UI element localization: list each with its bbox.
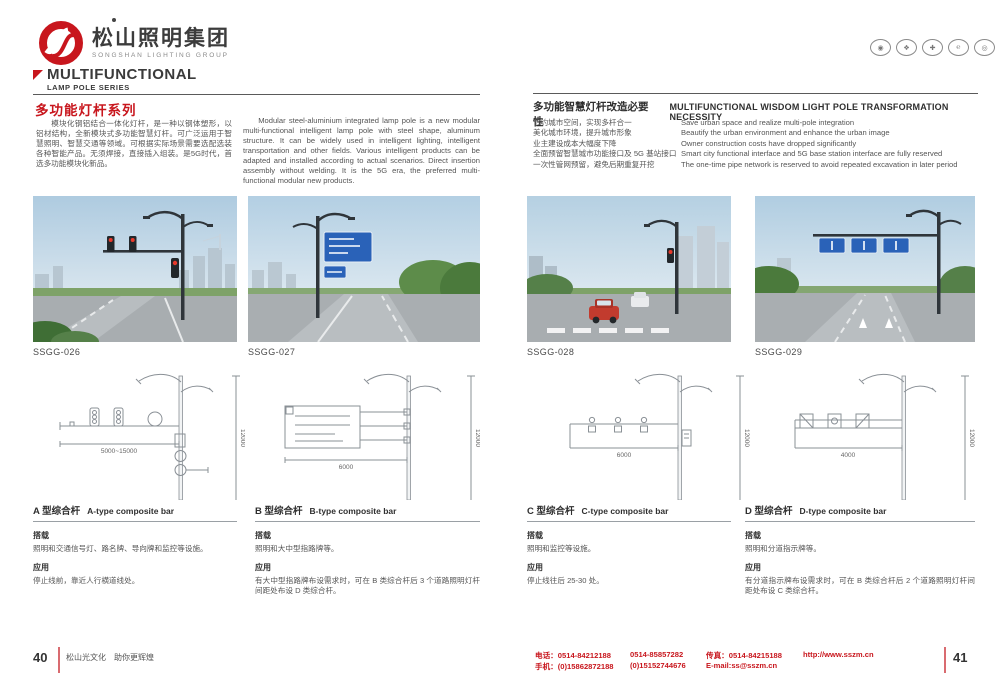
necessity-item-en: Save urban space and realize multi-pole … — [681, 118, 978, 128]
load-label: 搭载 — [527, 530, 731, 541]
intro-paragraph-en: Modular steel-aluminium integrated lamp … — [243, 116, 480, 186]
brand-logo: 松山照明集团 SONGSHAN LIGHTING GROUP — [38, 20, 230, 66]
type-b-title: B 型综合杆 B-type composite bar — [255, 503, 480, 522]
right-heading-rule — [533, 93, 978, 94]
diagram-type-a: 5000~15000 12000 — [40, 364, 245, 500]
certification-badges: ◉ ❖ ✚ ℮ ◎ — [870, 39, 995, 56]
page-number-right: 41 — [953, 650, 967, 665]
necessity-item-en: The one-time pipe network is reserved to… — [681, 160, 978, 170]
type-a-column: A 型综合杆 A-type composite bar 搭载 照明和交通信号灯、… — [33, 503, 237, 586]
type-name-en: D-type composite bar — [800, 506, 887, 516]
necessity-list: 节约城市空间，实现多杆合一 Save urban space and reali… — [533, 118, 978, 170]
necessity-item-cn: 美化城市环境，提升城市形象 — [533, 128, 681, 138]
app-text: 停止线前，靠近人行横道线处。 — [33, 576, 237, 586]
photo-ssgg-027 — [248, 196, 480, 342]
load-text: 照明和分道指示牌等。 — [745, 544, 975, 554]
catalog-spread: 松山照明集团 SONGSHAN LIGHTING GROUP ◉ ❖ ✚ ℮ ◎… — [0, 0, 1000, 683]
necessity-item: 节约城市空间，实现多杆合一 Save urban space and reali… — [533, 118, 978, 128]
necessity-item: 美化城市环境，提升城市形象 Beautify the urban environ… — [533, 128, 978, 138]
cert-badge-icon-1: ◉ — [870, 39, 891, 56]
dim-width-d: 4000 — [841, 452, 856, 459]
brand-name-en: SONGSHAN LIGHTING GROUP — [92, 52, 230, 59]
dim-width-a: 5000~15000 — [101, 448, 138, 455]
songshan-logo-icon — [38, 20, 84, 66]
intro-paragraph-cn: 模块化钢铝结合一体化灯杆，是一种以钢体塑形，以铝材结构，全新模块式多功能智慧灯杆… — [36, 119, 232, 169]
type-name-en: C-type composite bar — [582, 506, 669, 516]
cert-badge-icon-3: ✚ — [922, 39, 943, 56]
dim-height-a: 12000 — [239, 429, 245, 447]
dim-height-b: 12000 — [474, 429, 480, 447]
necessity-item-cn: 全面预留智慧城市功能接口及 5G 基站接口 — [533, 149, 681, 159]
section-marker-triangle-icon — [33, 70, 43, 80]
load-label: 搭载 — [33, 530, 237, 541]
necessity-item-en: Beautify the urban environment and enhan… — [681, 128, 978, 138]
photo-code: SSGG-028 — [527, 347, 574, 357]
load-text: 照明和交通信号灯、路名牌、导向牌和监控等设施。 — [33, 544, 237, 554]
necessity-item: 业主建设成本大幅度下降 Owner construction costs hav… — [533, 139, 978, 149]
contact-fax: 传真：0514-84215188 — [706, 650, 782, 661]
photo-ssgg-028 — [527, 196, 731, 342]
app-text: 停止线往后 25-30 处。 — [527, 576, 731, 586]
type-name-cn: D 型综合杆 — [745, 503, 793, 517]
type-name-cn: A 型综合杆 — [33, 503, 80, 517]
photo-ssgg-029 — [755, 196, 975, 342]
contact-url: http://www.sszm.cn — [803, 650, 874, 659]
dim-width-c: 6000 — [617, 452, 632, 459]
necessity-item-cn: 业主建设成本大幅度下降 — [533, 139, 681, 149]
type-c-column: C 型综合杆 C-type composite bar 搭载 照明和监控等设施。… — [527, 503, 731, 586]
type-name-en: B-type composite bar — [310, 506, 397, 516]
cert-badge-icon-4: ℮ — [948, 39, 969, 56]
left-heading-rule — [33, 94, 480, 95]
series-title-en: MULTIFUNCTIONAL — [47, 66, 197, 83]
cert-badge-icon-5: ◎ — [974, 39, 995, 56]
trademark-dot-icon — [112, 18, 116, 22]
load-label: 搭载 — [255, 530, 480, 541]
contact-email: E-mail:ss@sszm.cn — [706, 661, 777, 670]
page-number-left: 40 — [33, 650, 47, 665]
photo-ssgg-026 — [33, 196, 237, 342]
type-d-column: D 型综合杆 D-type composite bar 搭载 照明和分道指示牌等… — [745, 503, 975, 596]
app-text: 有分道指示牌布设需求时，可在 B 类综合杆后 2 个道路照明灯杆间距处布设 C … — [745, 576, 975, 596]
diagram-type-c: 6000 12000 — [530, 364, 750, 500]
load-text: 照明和监控等设施。 — [527, 544, 731, 554]
type-name-en: A-type composite bar — [87, 506, 174, 516]
necessity-item-cn: 节约城市空间，实现多杆合一 — [533, 118, 681, 128]
load-label: 搭载 — [745, 530, 975, 541]
series-subtitle-en: LAMP POLE SERIES — [47, 83, 130, 92]
dim-height-d: 12000 — [968, 429, 975, 447]
app-label: 应用 — [33, 562, 237, 573]
necessity-item: 一次性管网预留，避免后期重复开挖 The one-time pipe netwo… — [533, 160, 978, 170]
footer-divider-right — [944, 647, 946, 673]
type-name-cn: C 型综合杆 — [527, 503, 575, 517]
contact-tel1: 电话：0514-84212188 — [535, 650, 611, 661]
cert-badge-icon-2: ❖ — [896, 39, 917, 56]
type-a-title: A 型综合杆 A-type composite bar — [33, 503, 237, 522]
type-name-cn: B 型综合杆 — [255, 503, 303, 517]
photo-code: SSGG-029 — [755, 347, 802, 357]
dim-width-b: 6000 — [339, 464, 354, 471]
necessity-item: 全面预留智慧城市功能接口及 5G 基站接口 Smart city functio… — [533, 149, 978, 159]
contact-mobile2: (0)15152744676 — [630, 661, 686, 670]
necessity-item-en: Owner construction costs have dropped si… — [681, 139, 978, 149]
type-d-title: D 型综合杆 D-type composite bar — [745, 503, 975, 522]
contact-mobile1: 手机：(0)15862872188 — [535, 661, 614, 672]
diagram-type-b: 6000 12000 — [255, 364, 480, 500]
photo-code: SSGG-027 — [248, 347, 295, 357]
series-title-cn: 多功能灯杆系列 — [35, 99, 137, 119]
app-text: 有大中型指路牌布设需求时，可在 B 类综合杆后 3 个道路照明灯杆间距处布设 D… — [255, 576, 480, 596]
footer-divider-left — [58, 647, 60, 673]
brand-name-cn: 松山照明集团 — [92, 28, 230, 50]
contact-tel2: 0514-85857282 — [630, 650, 683, 659]
load-text: 照明和大中型指路牌等。 — [255, 544, 480, 554]
type-c-title: C 型综合杆 C-type composite bar — [527, 503, 731, 522]
app-label: 应用 — [745, 562, 975, 573]
necessity-item-en: Smart city functional interface and 5G b… — [681, 149, 978, 159]
type-b-column: B 型综合杆 B-type composite bar 搭载 照明和大中型指路牌… — [255, 503, 480, 596]
footer-tagline: 松山光文化 助你更辉煌 — [66, 652, 154, 663]
app-label: 应用 — [527, 562, 731, 573]
photo-code: SSGG-026 — [33, 347, 80, 357]
dim-height-c: 12000 — [743, 429, 750, 447]
diagram-type-d: 4000 12000 — [760, 364, 975, 500]
necessity-item-cn: 一次性管网预留，避免后期重复开挖 — [533, 160, 681, 170]
app-label: 应用 — [255, 562, 480, 573]
